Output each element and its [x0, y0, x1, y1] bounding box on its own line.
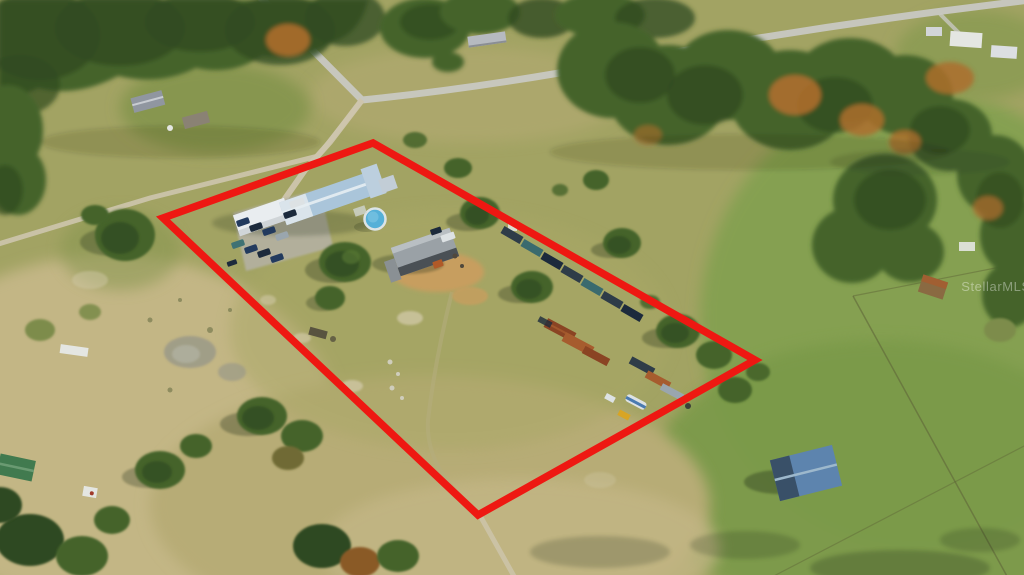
- forest-shadow: [40, 126, 320, 158]
- autumn-tree: [840, 104, 884, 136]
- ne-house: [991, 45, 1018, 59]
- tree-shadow-streak: [690, 531, 800, 559]
- tree-canopy: [876, 222, 944, 282]
- small-structure: [167, 125, 173, 131]
- tree-shadow-streak: [940, 528, 1020, 552]
- debris: [400, 396, 404, 400]
- aerial-photo-stage: StellarMLS: [0, 0, 1024, 575]
- tree-core: [661, 323, 689, 343]
- debris: [390, 386, 395, 391]
- tree-canopy: [854, 170, 926, 230]
- tree-canopy: [94, 506, 130, 534]
- aerial-photo: StellarMLS: [0, 0, 1024, 575]
- debris: [388, 360, 393, 365]
- sand-spot: [72, 271, 108, 289]
- house-roof: [991, 45, 1018, 59]
- tree-canopy: [315, 286, 345, 310]
- equipment-dot: [453, 254, 458, 259]
- autumn-tree: [266, 24, 310, 56]
- tree-canopy: [403, 132, 427, 148]
- tree-core: [607, 236, 631, 254]
- brush-dot: [168, 388, 173, 393]
- dead-brush: [218, 363, 246, 381]
- forest-shadow: [830, 149, 1010, 175]
- tree-canopy: [583, 170, 609, 190]
- ne-house: [950, 31, 983, 48]
- tree-canopy: [552, 184, 568, 196]
- tree-core: [516, 279, 542, 299]
- tree-canopy: [377, 540, 419, 572]
- tree-shadow-streak: [530, 536, 670, 568]
- old-machinery: [330, 336, 336, 342]
- canopy-structure: [959, 242, 975, 251]
- tree-highlight: [342, 250, 360, 264]
- watermark-text: StellarMLS: [961, 279, 1024, 294]
- debris: [396, 372, 400, 376]
- brush-dot: [207, 327, 213, 333]
- sand-spot: [260, 295, 276, 305]
- autumn-tree: [973, 196, 1003, 220]
- tree-canopy: [180, 434, 212, 458]
- ne-small-house: [926, 27, 942, 36]
- equipment-dot: [685, 403, 691, 409]
- equipment-dot: [460, 264, 464, 268]
- tree-core: [142, 461, 172, 483]
- tree-canopy: [56, 536, 108, 575]
- dead-brush-core: [172, 345, 200, 363]
- tree-core: [242, 406, 274, 430]
- brush-dot: [178, 298, 182, 302]
- sage-tree: [79, 304, 101, 320]
- brush-dot: [148, 318, 153, 323]
- tree-canopy: [81, 205, 109, 225]
- brush-dot: [228, 308, 232, 312]
- tree-canopy: [432, 52, 464, 72]
- tree-canopy: [444, 158, 472, 178]
- autumn-tree: [769, 75, 821, 115]
- tree-canopy: [667, 65, 743, 125]
- sage-tree: [984, 318, 1016, 342]
- tree-canopy: [605, 47, 675, 103]
- sage-tree: [25, 319, 55, 341]
- tree-core: [101, 222, 139, 254]
- autumn-tree: [926, 62, 974, 94]
- house-roof: [950, 31, 983, 48]
- dirt-patch: [452, 287, 488, 305]
- pool-highlight: [368, 212, 379, 223]
- sand-spot: [584, 472, 616, 488]
- sand-spot: [397, 311, 423, 325]
- brush: [272, 446, 304, 470]
